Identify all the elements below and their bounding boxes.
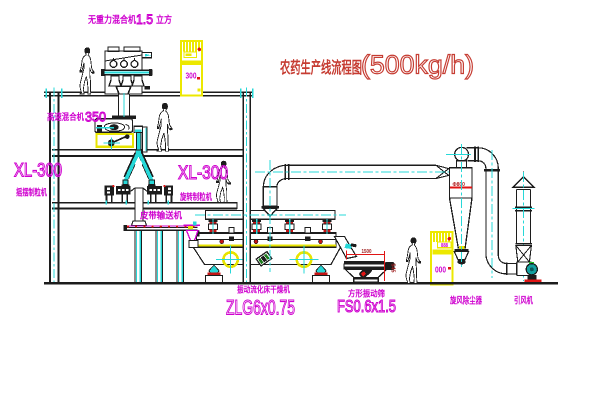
svg-text:皮带输送机: 皮带输送机 (139, 210, 182, 221)
svg-text:888: 888 (441, 243, 448, 249)
svg-text:农药生产线流程图: 农药生产线流程图 (279, 58, 362, 77)
svg-text:300: 300 (186, 72, 197, 81)
svg-text:(500kg/h): (500kg/h) (361, 50, 474, 80)
svg-text:振动流化床干燥机: 振动流化床干燥机 (237, 285, 290, 295)
svg-text:摇摆制粒机: 摇摆制粒机 (16, 187, 47, 198)
svg-text:立方: 立方 (156, 14, 172, 26)
svg-text:高速混合机: 高速混合机 (47, 111, 84, 122)
svg-text:旋风除尘器: 旋风除尘器 (449, 295, 482, 306)
svg-text:1500: 1500 (362, 249, 372, 255)
svg-text:350: 350 (85, 110, 106, 125)
svg-text:1.5: 1.5 (136, 11, 153, 27)
svg-text:ZLG6x0.75: ZLG6x0.75 (226, 297, 295, 320)
svg-text:545: 545 (389, 264, 395, 273)
svg-text:引风机: 引风机 (514, 295, 533, 306)
svg-text:XL-300: XL-300 (178, 163, 228, 184)
svg-text:无重力混合机: 无重力混合机 (87, 14, 136, 26)
svg-text:FS0.6x1.5: FS0.6x1.5 (337, 296, 396, 316)
svg-text:旋转制粒机: 旋转制粒机 (179, 191, 212, 202)
svg-text:000: 000 (435, 266, 446, 275)
svg-text:XL-300: XL-300 (14, 161, 62, 182)
svg-text:Φ800: Φ800 (453, 182, 466, 188)
